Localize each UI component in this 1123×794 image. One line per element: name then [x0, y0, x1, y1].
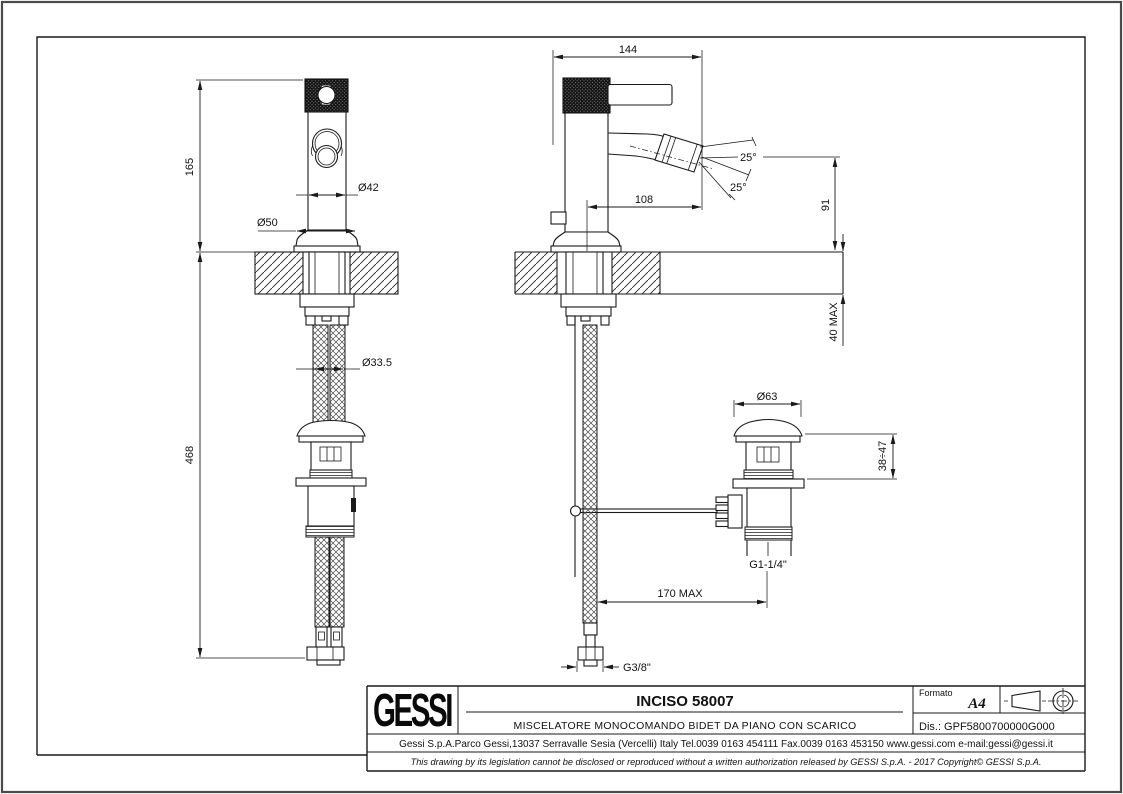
side-view-supply-hose: [578, 325, 603, 666]
title-block: GESSI INCISO 58007 MISCELATORE MONOCOMAN…: [367, 686, 1085, 771]
dim-total-depth: 144: [619, 44, 637, 56]
front-view-mixer: [294, 79, 360, 252]
dim-aerator-height: 91: [820, 199, 832, 211]
dim-waste-thread: G1-1/4": [749, 559, 787, 571]
spray-angle-rays: [699, 137, 840, 200]
pop-up-knob-side: [551, 212, 566, 224]
projection-symbol-icon: [1004, 688, 1078, 714]
horizontal-rod: [578, 509, 717, 513]
format-label: Formato: [919, 688, 953, 698]
dim-total-height: 468: [184, 446, 196, 464]
rod-clamp-edge: [351, 498, 356, 512]
technical-drawing: 165 468 Ø42 Ø50 Ø33.5: [0, 0, 1123, 794]
drawing-sheet: 165 468 Ø42 Ø50 Ø33.5: [0, 0, 1123, 794]
drawing-frame: [37, 37, 1085, 771]
company-info: Gessi S.p.A.Parco Gessi,13037 Serravalle…: [399, 739, 1053, 750]
counter-hatch-right: [350, 252, 398, 294]
base-flare-side: [553, 232, 620, 246]
knurled-handle: [563, 78, 610, 113]
hose-end-nut: [307, 647, 344, 660]
dim-waste-offset: 170 MAX: [657, 588, 703, 600]
side-view-mixer: [551, 78, 840, 252]
dim-spray-angle-lower: 25°: [730, 182, 747, 194]
front-view-pop-up-waste: [296, 421, 366, 538]
dim-supply-thread: G3/8": [623, 662, 651, 674]
dim-base-diameter: Ø50: [257, 217, 278, 229]
threaded-shank-side: [566, 252, 603, 294]
gessi-logo: GESSI: [373, 686, 452, 737]
waste-dome-cap-side: [734, 420, 802, 437]
dim-waste-cap-diameter: Ø63: [757, 391, 778, 403]
side-view-pop-up-waste: [716, 420, 804, 557]
sheet-borders: [2, 2, 1121, 792]
dim-spray-angle-upper: 25°: [740, 152, 757, 164]
front-view-fixing-nut: [300, 294, 354, 325]
waste-body: [308, 486, 354, 526]
waste-thread-g114: [745, 527, 792, 540]
mixer-body: [308, 112, 346, 230]
legal-notice: This drawing by its legislation cannot b…: [411, 757, 1042, 767]
dim-spout-reach: 108: [635, 194, 653, 206]
front-view-supply-hoses-upper: [313, 325, 345, 423]
waste-flange-side: [733, 479, 804, 488]
handle-lever: [608, 85, 672, 106]
rod-ball-joint: [571, 506, 581, 516]
format-value: A4: [967, 696, 986, 712]
side-view-countertop: [515, 252, 843, 294]
dim-shank-diameter: Ø33.5: [362, 357, 392, 369]
front-view-countertop: [255, 252, 398, 294]
base-plate: [294, 246, 360, 252]
hose-end-nut-side: [578, 647, 603, 660]
dim-deck-thickness: 40 MAX: [828, 302, 840, 342]
rod-clamp: [716, 495, 742, 528]
front-view: 165 468 Ø42 Ø50 Ø33.5: [184, 79, 398, 665]
base-plate-side: [551, 246, 621, 252]
product-code: INCISO 58007: [636, 693, 734, 710]
side-view: 144 108 25° 25° 91 40 MAX Ø63 38÷47 G1-1: [515, 44, 897, 674]
front-view-dimensions: 165 468 Ø42 Ø50 Ø33.5: [184, 80, 392, 658]
base-flare: [296, 230, 358, 246]
outer-border: [2, 2, 1121, 792]
front-view-supply-hoses-lower: [307, 537, 344, 665]
dim-spout-height: 165: [184, 158, 196, 176]
mixer-body-side: [565, 113, 608, 232]
waste-body-side: [747, 488, 791, 527]
side-view-fixing-nut: [561, 294, 616, 325]
cap-lever-hole: [318, 87, 335, 104]
spout: [608, 133, 664, 160]
dim-body-diameter: Ø42: [358, 182, 379, 194]
waste-flange: [296, 478, 366, 486]
aerator: [655, 134, 703, 172]
counter-hatch-left: [255, 252, 303, 294]
threaded-shank: [309, 252, 345, 294]
waste-dome-cap: [297, 421, 365, 437]
drawing-number: Dis.: GPF5800700000G000: [919, 721, 1055, 733]
product-description: MISCELATORE MONOCOMANDO BIDET DA PIANO C…: [514, 720, 857, 732]
dim-waste-adjust-range: 38÷47: [877, 441, 889, 472]
